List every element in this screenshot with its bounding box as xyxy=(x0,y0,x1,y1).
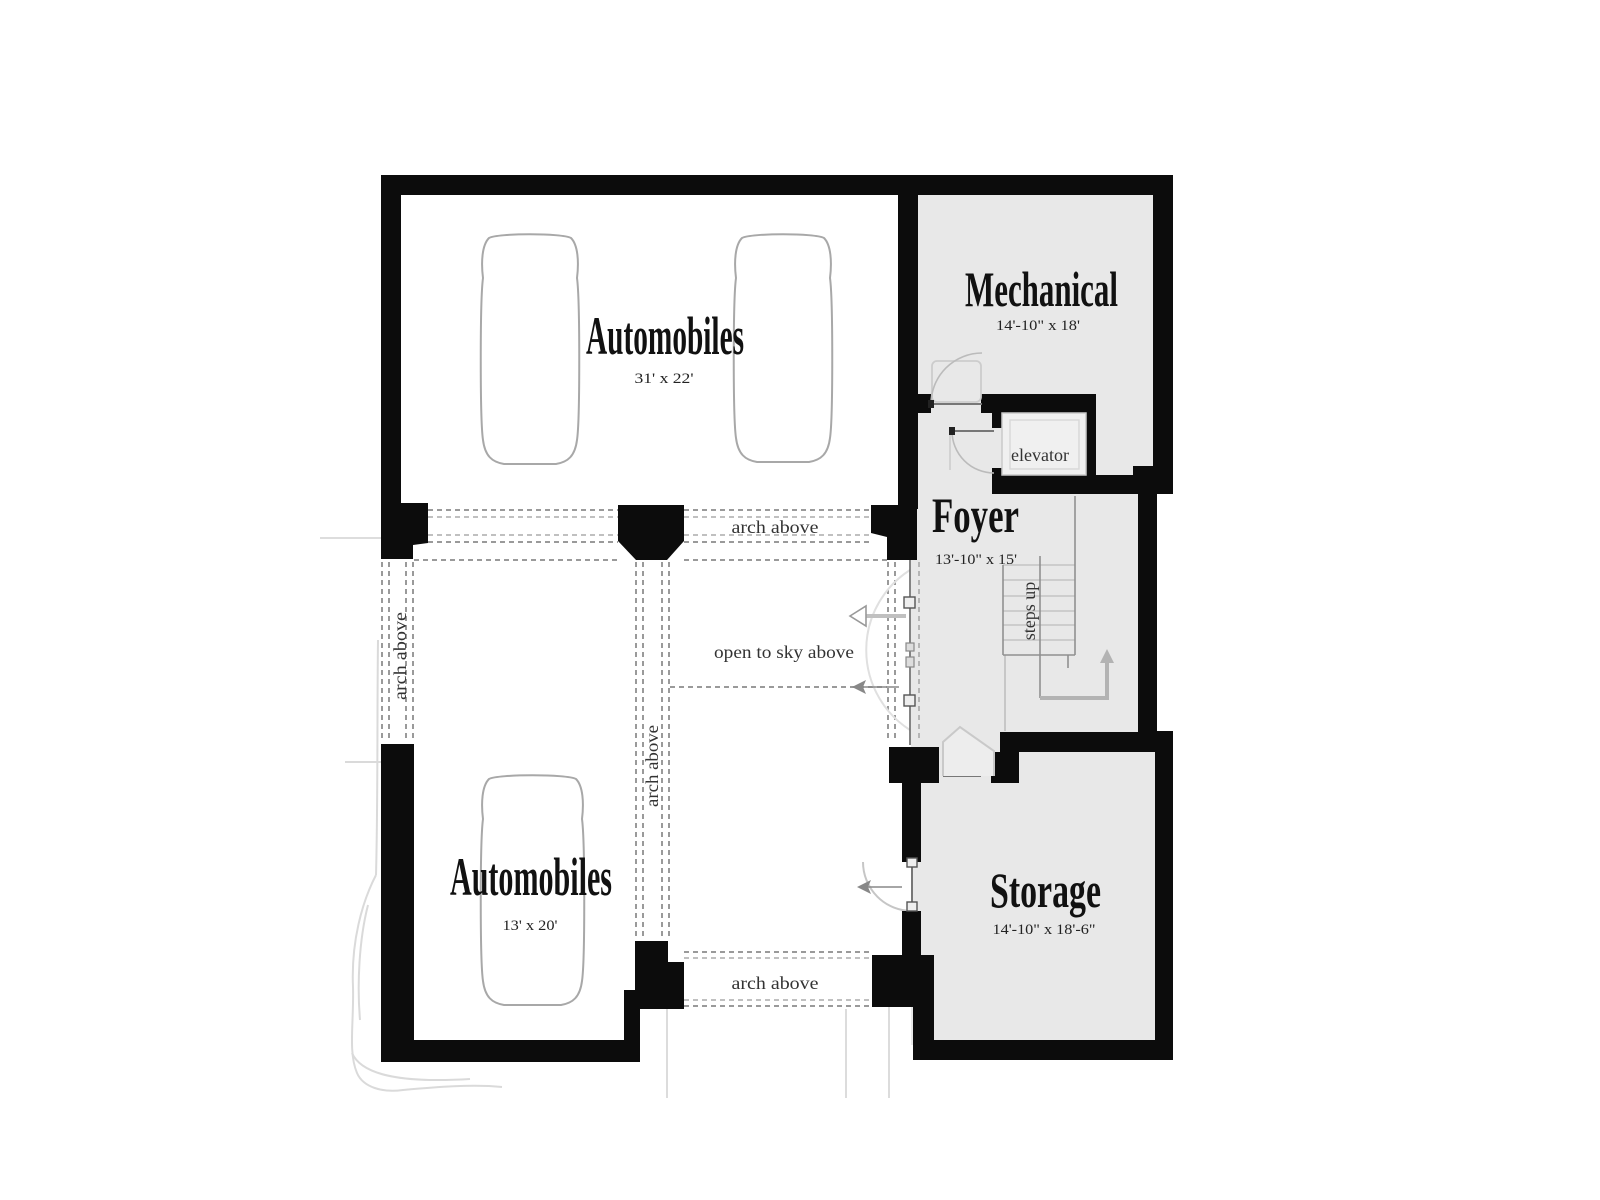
svg-text:13'-10" x 15': 13'-10" x 15' xyxy=(935,552,1017,568)
svg-text:arch above: arch above xyxy=(732,973,819,993)
svg-text:steps up: steps up xyxy=(1019,582,1039,641)
svg-text:arch above: arch above xyxy=(390,612,410,700)
svg-text:open to sky above: open to sky above xyxy=(714,642,854,662)
svg-text:Mechanical: Mechanical xyxy=(965,261,1118,317)
svg-text:arch above: arch above xyxy=(642,725,662,807)
svg-text:elevator: elevator xyxy=(1011,445,1069,465)
svg-text:13' x 20': 13' x 20' xyxy=(503,918,558,934)
svg-text:Foyer: Foyer xyxy=(932,487,1019,543)
svg-text:Automobiles: Automobiles xyxy=(450,847,612,907)
svg-text:arch above: arch above xyxy=(732,517,819,537)
svg-text:14'-10" x 18': 14'-10" x 18' xyxy=(996,318,1080,334)
svg-text:Storage: Storage xyxy=(990,862,1101,918)
svg-text:14'-10" x 18'-6": 14'-10" x 18'-6" xyxy=(993,922,1096,938)
svg-text:31' x 22': 31' x 22' xyxy=(635,371,694,387)
svg-text:Automobiles: Automobiles xyxy=(586,306,744,366)
